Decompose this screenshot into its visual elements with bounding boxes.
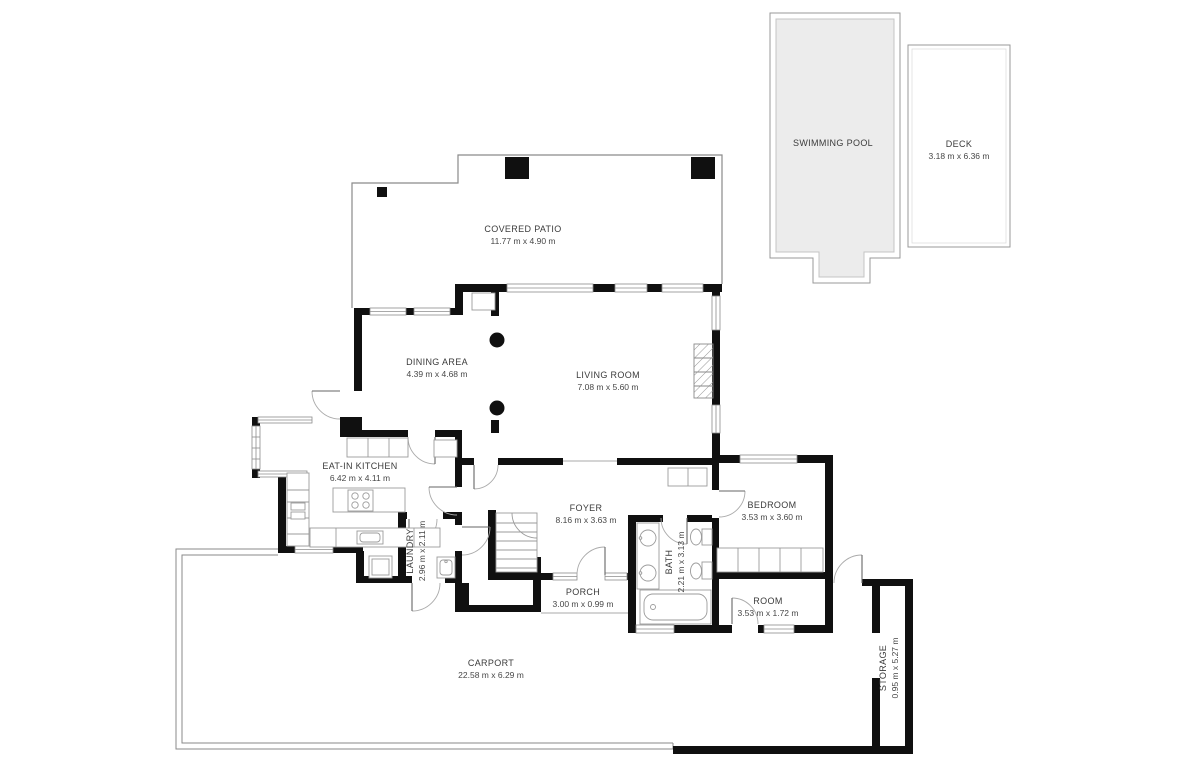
deck-shape xyxy=(908,45,1010,247)
laundry-fixtures xyxy=(369,556,455,578)
floorplan-drawing xyxy=(0,0,1200,779)
floorplan: SWIMMING POOL DECK3.18 m x 6.36 m COVERE… xyxy=(0,0,1200,779)
kitchen-sink-icon xyxy=(291,503,305,510)
bath-fixtures xyxy=(637,523,712,624)
kitchen-island xyxy=(333,488,405,512)
washer-icon xyxy=(369,556,392,578)
stove-icon xyxy=(348,490,373,511)
opening-lines xyxy=(541,461,628,613)
cabinet xyxy=(472,293,495,310)
fireplace-icon xyxy=(694,344,713,398)
foyer-closet xyxy=(668,468,707,486)
toilet-icon xyxy=(691,529,713,579)
structural-columns xyxy=(490,333,505,416)
walls xyxy=(252,284,913,754)
bedroom-closet xyxy=(717,548,823,572)
stairs-icon xyxy=(496,513,537,572)
swimming-pool-shape xyxy=(770,13,900,283)
fridge-icon xyxy=(434,440,457,457)
carport-outline xyxy=(176,549,673,749)
laundry-sink-icon xyxy=(437,557,455,578)
bathtub-icon xyxy=(640,590,711,624)
patio-pillars xyxy=(377,157,715,197)
